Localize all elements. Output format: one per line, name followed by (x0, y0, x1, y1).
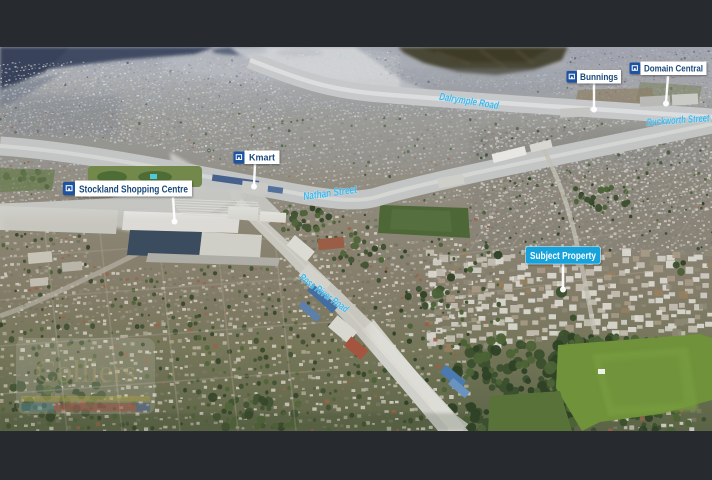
svg-text:Colliers: Colliers (35, 353, 136, 389)
svg-text:Domain Central: Domain Central (644, 64, 703, 75)
svg-text:Kmart: Kmart (249, 153, 276, 164)
svg-text:Subject Property: Subject Property (530, 250, 596, 262)
svg-text:Bunnings: Bunnings (580, 72, 618, 83)
svg-text:Stockland Shopping Centre: Stockland Shopping Centre (79, 185, 188, 196)
